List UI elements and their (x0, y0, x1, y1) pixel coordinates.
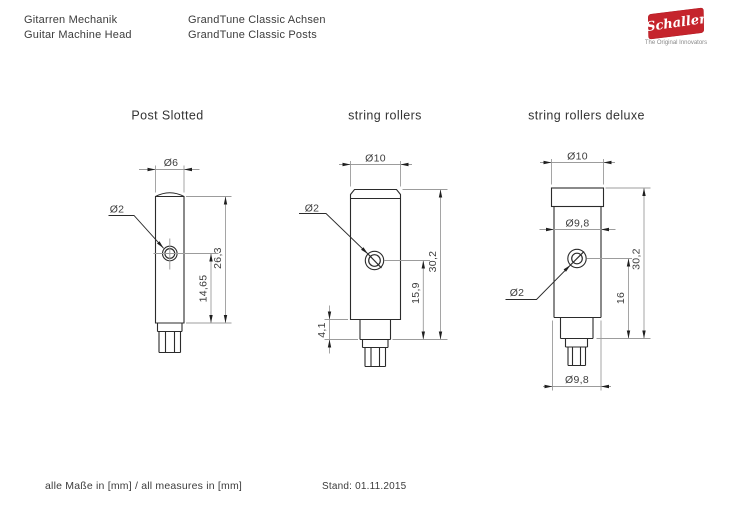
dim-label-roller-bottom: Ø9,8 (565, 374, 589, 386)
dim-label-hole-diameter: Ø2 (305, 203, 320, 215)
drawing-title: string rollers (348, 109, 422, 123)
arrowhead (642, 188, 645, 196)
hole-leader-line (299, 214, 368, 255)
arrowhead (184, 168, 192, 171)
revision-date: Stand: 01.11.2015 (322, 481, 406, 492)
dim-label-hole-diameter: Ø2 (110, 204, 125, 216)
extension-lines-right (186, 197, 232, 324)
arrowhead (439, 332, 442, 340)
arrowhead (546, 228, 554, 231)
dim-label-roller-top: Ø9,8 (566, 218, 590, 230)
post-spline-tip (159, 332, 181, 353)
dim-label-hole-diameter: Ø2 (510, 287, 525, 299)
arrowhead (544, 161, 552, 164)
dim-top-diameter-lines (339, 161, 412, 187)
hole-centerlines (154, 239, 219, 270)
drawing-title: Post Slotted (131, 109, 203, 123)
arrowhead (224, 315, 227, 323)
drawing-post-slotted: Post Slotted Ø6 Ø2 14,65 26,3 (109, 109, 232, 353)
arrowhead (148, 168, 156, 171)
arrowhead (422, 261, 425, 269)
dim-label-hole-height: 14,65 (198, 275, 210, 303)
post-spline-tip (365, 348, 386, 367)
arrowhead (343, 163, 351, 166)
dim-label-hole-height: 15,9 (410, 282, 422, 304)
arrowhead (328, 340, 331, 348)
post-spline-tip (568, 347, 586, 366)
post-step-1 (360, 320, 391, 340)
units-note: alle Maße in [mm] / all measures in [mm] (45, 480, 242, 492)
dim-label-step-height: 4,1 (316, 322, 328, 338)
arrowhead (627, 331, 630, 339)
arrowhead (209, 315, 212, 323)
dim-top-diameter-lines (540, 159, 615, 185)
post-step (158, 323, 183, 332)
arrowhead (401, 163, 409, 166)
post-step-2 (363, 340, 389, 348)
drawing-string-rollers: string rollers Ø10 Ø2 (299, 109, 448, 367)
dim-label-total-height: 30,2 (427, 251, 439, 273)
datasheet-page: Gitarren Mechanik Guitar Machine Head Gr… (0, 0, 742, 524)
dim-label-top-diameter: Ø6 (164, 157, 179, 169)
arrowhead (224, 197, 227, 205)
arrowhead (328, 312, 331, 320)
arrowhead (604, 161, 612, 164)
drawing-canvas: Post Slotted Ø6 Ø2 14,65 26,3 (0, 0, 742, 524)
arrowhead (601, 385, 609, 388)
dim-label-total-height: 26,3 (212, 247, 224, 269)
post-step-2 (566, 339, 588, 348)
drawing-title: string rollers deluxe (528, 109, 645, 123)
drawing-string-rollers-deluxe: string rollers deluxe (506, 109, 651, 391)
post-step-1 (561, 318, 594, 339)
arrowhead (422, 332, 425, 340)
cap-outline (552, 188, 604, 207)
dim-label-total-height: 30,2 (631, 248, 643, 270)
arrowhead (601, 228, 609, 231)
arrowhead (439, 190, 442, 198)
dim-label-top-diameter: Ø10 (365, 153, 386, 165)
dim-label-top-diameter: Ø10 (567, 151, 588, 163)
arrowhead (642, 331, 645, 339)
arrowhead (545, 385, 553, 388)
dim-label-hole-height: 16 (615, 292, 627, 304)
